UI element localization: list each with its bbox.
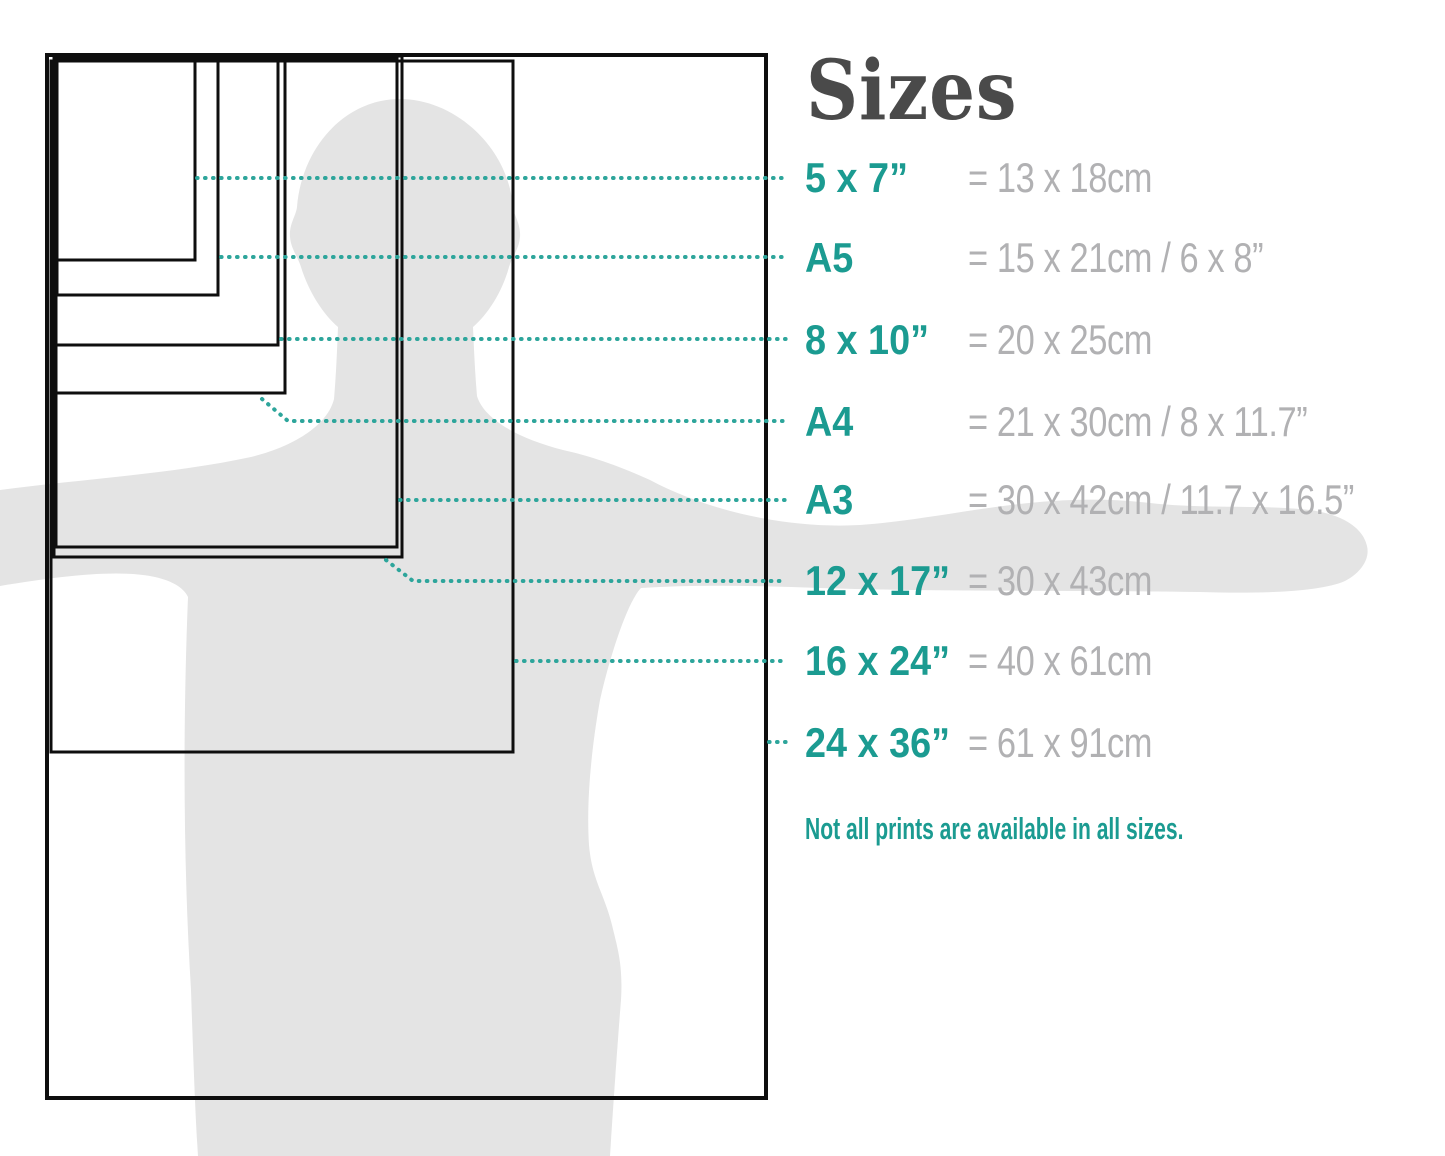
size-label-a3: A3 bbox=[805, 476, 853, 524]
size-rect-8x10 bbox=[54, 56, 278, 345]
size-label-16x24: 16 x 24” bbox=[805, 637, 950, 685]
size-label-a4: A4 bbox=[805, 398, 853, 446]
size-label-12x17: 12 x 17” bbox=[805, 557, 950, 605]
size-metric-5x7: = 13 x 18cm bbox=[968, 154, 1152, 202]
size-metric-24x36: = 61 x 91cm bbox=[968, 719, 1152, 767]
size-label-5x7: 5 x 7” bbox=[805, 154, 908, 202]
size-metric-a3: = 30 x 42cm / 11.7 x 16.5” bbox=[968, 476, 1354, 524]
size-metric-16x24: = 40 x 61cm bbox=[968, 637, 1152, 685]
page-title: Sizes bbox=[806, 50, 1017, 132]
size-rect-a4 bbox=[56, 58, 285, 393]
size-label-24x36: 24 x 36” bbox=[805, 719, 950, 767]
size-metric-a5: = 15 x 21cm / 6 x 8” bbox=[968, 234, 1263, 282]
size-diagram bbox=[0, 0, 1445, 1156]
size-label-8x10: 8 x 10” bbox=[805, 316, 929, 364]
size-label-a5: A5 bbox=[805, 234, 853, 282]
size-guide-infographic: Sizes 5 x 7” = 13 x 18cm A5 = 15 x 21cm … bbox=[0, 0, 1445, 1156]
size-metric-12x17: = 30 x 43cm bbox=[968, 557, 1152, 605]
size-metric-8x10: = 20 x 25cm bbox=[968, 316, 1152, 364]
size-rect-5x7 bbox=[57, 61, 195, 260]
size-metric-a4: = 21 x 30cm / 8 x 11.7” bbox=[968, 398, 1307, 446]
availability-note: Not all prints are available in all size… bbox=[805, 811, 1183, 847]
